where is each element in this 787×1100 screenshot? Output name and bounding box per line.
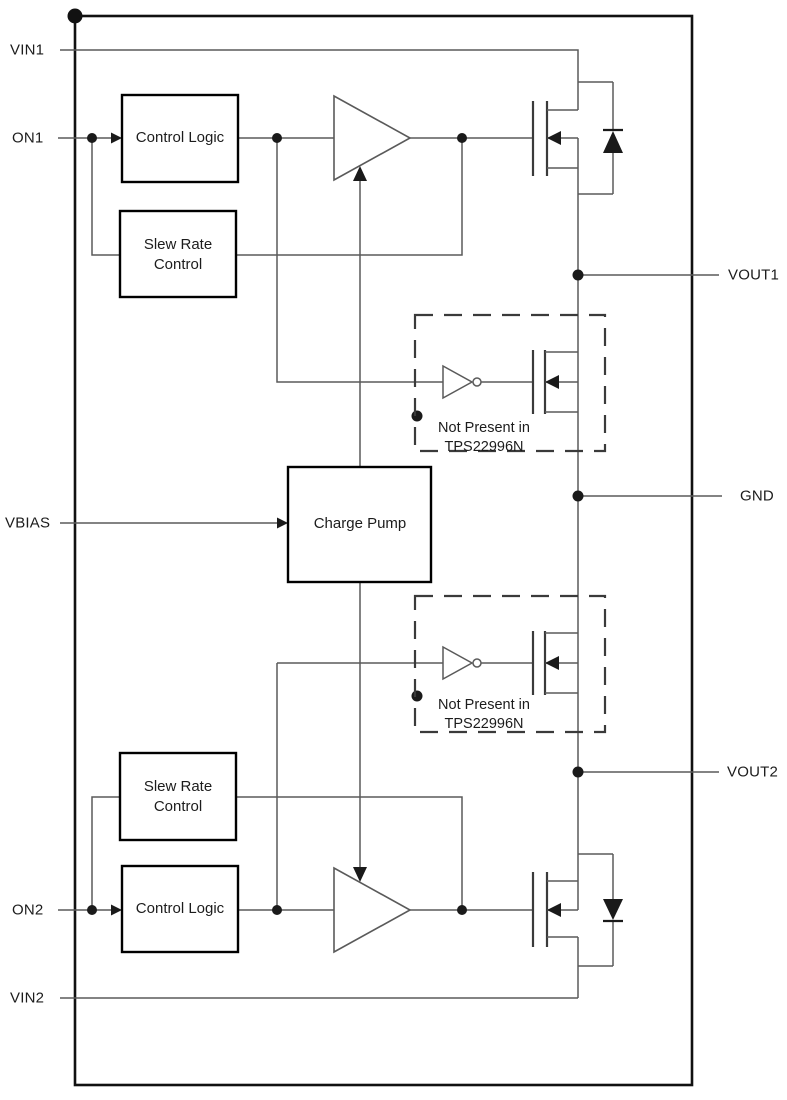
body-diode-1 [603,130,623,153]
slew-rate-2-line1: Slew Rate [144,777,212,797]
qod2-body-arrow [545,656,559,670]
inverter2-triangle [443,647,472,679]
block-diagram: VIN1 ON1 VBIAS ON2 VIN2 VOUT1 GND VOUT2 … [0,0,787,1100]
buffer2-triangle [334,868,410,952]
slew-rate-2-label: Slew Rate Control [144,777,212,817]
inverter1-triangle [443,366,472,398]
on2-arrow [111,905,122,916]
fet2-body-arrow [547,903,561,917]
corner-junction-dot [68,9,83,24]
pin-label-on2: ON2 [12,903,43,918]
control-logic-1-label: Control Logic [136,128,224,148]
pin-label-gnd: GND [740,489,774,504]
qod2-note: Not Present in TPS22996N [438,696,530,734]
pin-label-vin1: VIN1 [10,43,44,58]
inverter1-bubble [473,378,481,386]
slew-rate-1-line1: Slew Rate [144,235,212,255]
pin-label-vbias: VBIAS [5,516,50,531]
pin-label-vout2: VOUT2 [727,765,778,780]
on2-to-slew2-wire [92,797,120,910]
body-diode-2 [603,899,623,921]
on1-arrow [111,133,122,144]
pin-label-on1: ON1 [12,131,43,146]
pin-label-vout1: VOUT1 [728,268,779,283]
slew-rate-1-label: Slew Rate Control [144,235,212,275]
slew-rate-1-line2: Control [144,255,212,275]
qod1-note-line1: Not Present in [438,419,530,438]
on1-to-slew1-wire [92,138,120,255]
qod2-note-line2: TPS22996N [438,715,530,734]
pin-label-vin2: VIN2 [10,991,44,1006]
diagram-canvas [0,0,787,1100]
fet1-body-arrow [547,131,561,145]
buffer1-triangle [334,96,410,180]
vbias-arrow [277,518,288,529]
qod1-note: Not Present in TPS22996N [438,419,530,457]
charge-pump-label: Charge Pump [314,514,407,534]
inverter2-bubble [473,659,481,667]
qod1-note-line2: TPS22996N [438,438,530,457]
qod2-note-line1: Not Present in [438,696,530,715]
slew-rate-2-line2: Control [144,797,212,817]
control-logic-2-label: Control Logic [136,899,224,919]
qod1-body-arrow [545,375,559,389]
